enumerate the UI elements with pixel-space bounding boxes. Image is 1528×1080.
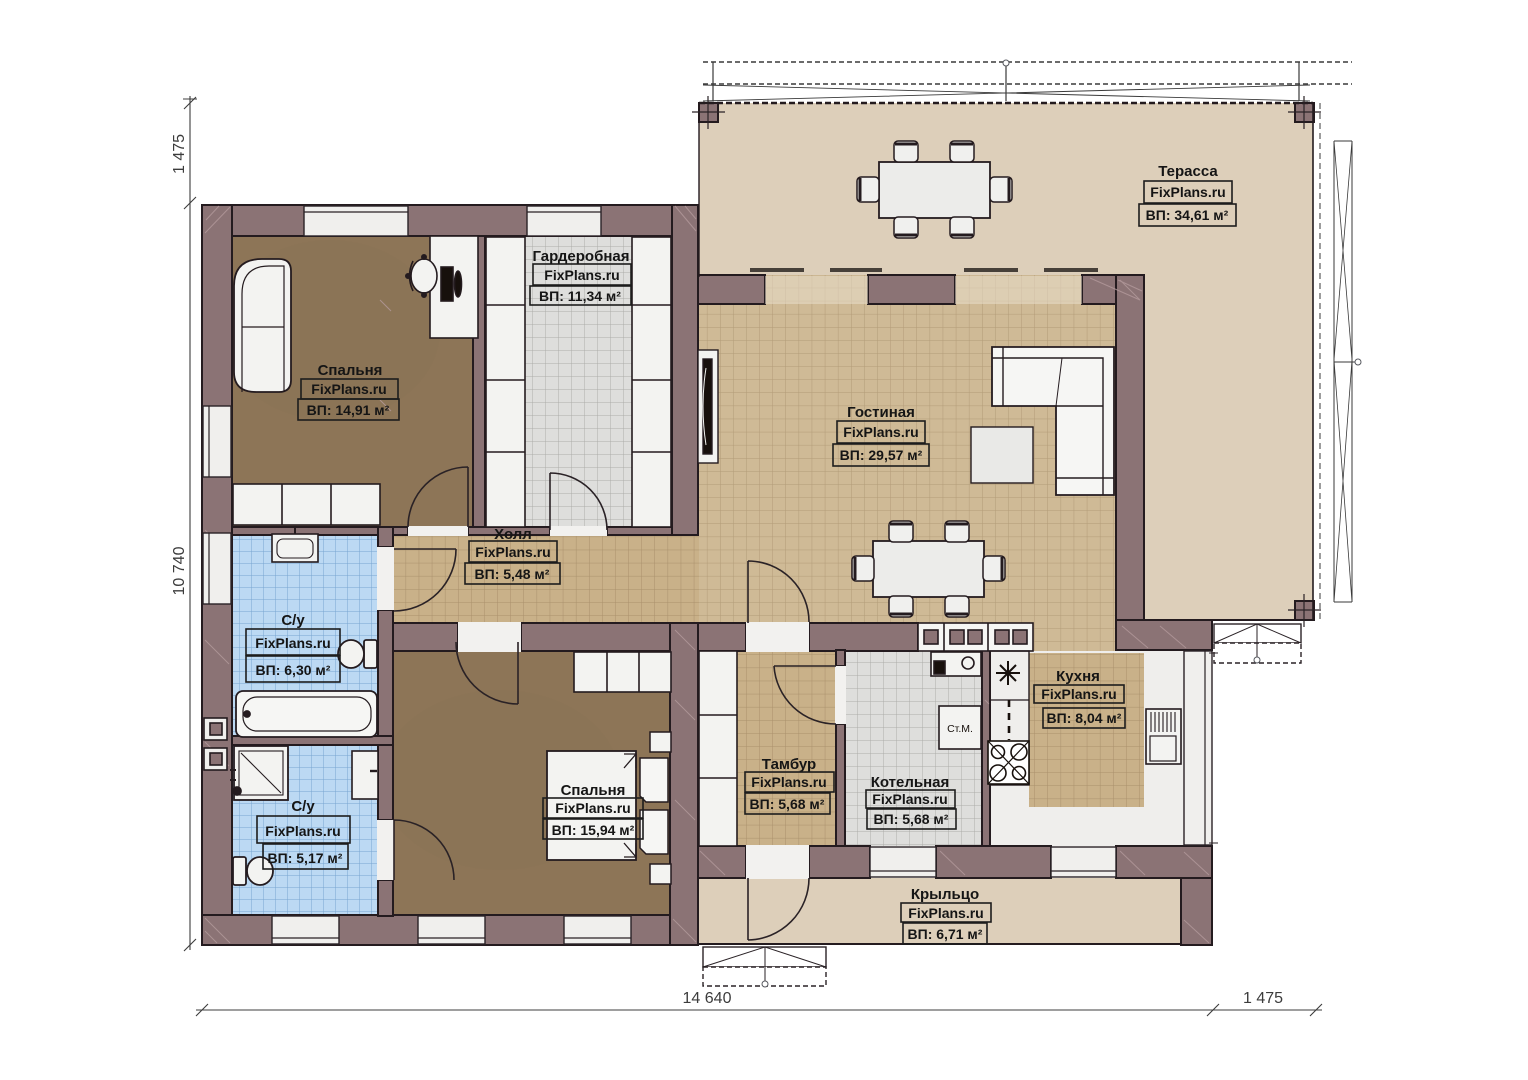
svg-text:Терасса: Терасса <box>1158 163 1218 180</box>
svg-text:FixPlans.ru: FixPlans.ru <box>255 635 330 651</box>
svg-text:Котельная: Котельная <box>871 774 950 791</box>
svg-text:Тамбур: Тамбур <box>762 756 816 773</box>
svg-text:ВП: 5,48 м²: ВП: 5,48 м² <box>475 566 550 582</box>
svg-text:ВП: 5,17 м²: ВП: 5,17 м² <box>268 850 343 866</box>
svg-text:FixPlans.ru: FixPlans.ru <box>1150 184 1225 200</box>
svg-text:FixPlans.ru: FixPlans.ru <box>265 823 340 839</box>
svg-text:Ст.М.: Ст.М. <box>947 723 973 735</box>
svg-text:ВП: 11,34 м²: ВП: 11,34 м² <box>539 288 621 304</box>
svg-text:ВП: 29,57 м²: ВП: 29,57 м² <box>840 447 923 463</box>
svg-text:ВП: 14,91 м²: ВП: 14,91 м² <box>307 402 390 418</box>
svg-text:Гостиная: Гостиная <box>847 404 915 421</box>
svg-text:ВП: 6,71 м²: ВП: 6,71 м² <box>908 926 983 942</box>
svg-text:ВП: 6,30 м²: ВП: 6,30 м² <box>256 662 331 678</box>
svg-text:FixPlans.ru: FixPlans.ru <box>311 381 386 397</box>
svg-text:1 475: 1 475 <box>171 134 188 174</box>
svg-text:Кухня: Кухня <box>1056 668 1100 685</box>
svg-text:ВП: 5,68 м²: ВП: 5,68 м² <box>750 796 825 812</box>
svg-text:FixPlans.ru: FixPlans.ru <box>1041 686 1116 702</box>
svg-text:FixPlans.ru: FixPlans.ru <box>475 544 550 560</box>
svg-text:ВП: 15,94 м²: ВП: 15,94 м² <box>552 822 635 838</box>
svg-text:Спальня: Спальня <box>561 782 626 799</box>
svg-text:1 475: 1 475 <box>1243 990 1283 1007</box>
svg-text:FixPlans.ru: FixPlans.ru <box>751 774 826 790</box>
svg-text:FixPlans.ru: FixPlans.ru <box>544 267 619 283</box>
svg-text:FixPlans.ru: FixPlans.ru <box>908 905 983 921</box>
svg-text:10 740: 10 740 <box>171 546 188 595</box>
svg-text:FixPlans.ru: FixPlans.ru <box>872 791 947 807</box>
svg-text:FixPlans.ru: FixPlans.ru <box>843 424 918 440</box>
svg-text:ВП: 8,04 м²: ВП: 8,04 м² <box>1047 710 1122 726</box>
svg-text:ВП: 5,68 м²: ВП: 5,68 м² <box>874 811 949 827</box>
svg-text:С/у: С/у <box>281 612 305 629</box>
svg-text:14 640: 14 640 <box>683 990 732 1007</box>
svg-text:FixPlans.ru: FixPlans.ru <box>555 800 630 816</box>
svg-text:Гардеробная: Гардеробная <box>532 248 629 265</box>
svg-text:Крыльцо: Крыльцо <box>911 886 979 903</box>
svg-text:С/у: С/у <box>291 798 315 815</box>
svg-text:ВП: 34,61 м²: ВП: 34,61 м² <box>1146 207 1229 223</box>
svg-text:Спальня: Спальня <box>318 362 383 379</box>
